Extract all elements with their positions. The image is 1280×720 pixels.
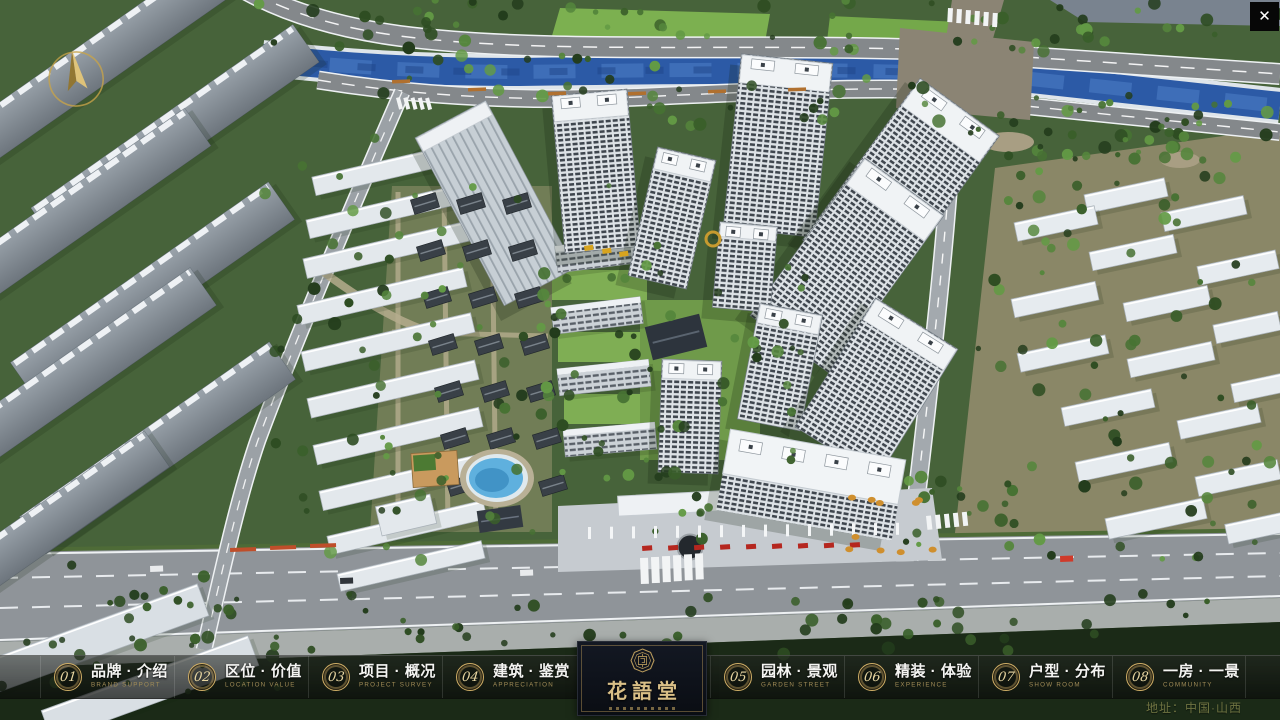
nav-badge-07: 07 xyxy=(992,663,1020,691)
nav-badge-01: 01 xyxy=(54,663,82,691)
nav-label: 园林 · 景观 xyxy=(761,664,850,679)
close-button[interactable]: ✕ xyxy=(1250,2,1279,31)
nav-item-architecture[interactable]: 04 建筑 · 鉴赏 APPRECIATION xyxy=(442,656,576,698)
logo-english-subtitle xyxy=(609,707,675,710)
project-address: 地址：中国·山西 xyxy=(1146,699,1242,716)
nav-item-floorplans[interactable]: 07 户型 · 分布 SHOW ROOM xyxy=(978,656,1112,698)
close-icon: ✕ xyxy=(1258,8,1271,25)
nav-item-interior[interactable]: 06 精装 · 体验 EXPERIENCE xyxy=(844,656,978,698)
nav-label: 区位 · 价值 xyxy=(225,664,316,679)
nav-item-garden[interactable]: 05 园林 · 景观 GARDEN STREET xyxy=(710,656,844,698)
nav-sublabel: GARDEN STREET xyxy=(761,682,830,688)
sales-app-window: ✕ 01 品牌 · 介绍 BRAND SUPPORT 02 区位 · 价值 LO… xyxy=(0,0,1280,720)
compass-north-indicator xyxy=(42,42,110,110)
nav-sublabel: SHOW ROOM xyxy=(1029,682,1089,688)
nav-badge-08: 08 xyxy=(1126,663,1154,691)
swimming-pool xyxy=(460,449,534,507)
nav-label: 一房 · 一景 xyxy=(1163,664,1240,679)
nav-sublabel: APPRECIATION xyxy=(493,682,554,688)
nav-badge-02: 02 xyxy=(188,663,216,691)
nav-sublabel: LOCATION VALUE xyxy=(225,682,296,688)
nav-label: 精装 · 体验 xyxy=(895,664,972,679)
masterplan-viewport[interactable] xyxy=(0,0,1280,720)
nav-item-location[interactable]: 02 区位 · 价值 LOCATION VALUE xyxy=(174,656,308,698)
nav-sublabel: COMMUNITY xyxy=(1163,682,1223,688)
nav-item-community[interactable]: 08 一房 · 一景 COMMUNITY xyxy=(1112,656,1246,698)
project-logo-title: 花語堂 xyxy=(602,675,682,704)
nav-label: 建筑 · 鉴赏 xyxy=(493,664,571,679)
nav-sublabel: PROJECT SURVEY xyxy=(359,682,433,688)
nav-item-brand[interactable]: 01 品牌 · 介绍 BRAND SUPPORT xyxy=(40,656,174,698)
nav-label: 户型 · 分布 xyxy=(1029,664,1106,679)
nav-badge-05: 05 xyxy=(724,663,752,691)
nav-badge-03: 03 xyxy=(322,663,350,691)
nav-label: 品牌 · 介绍 xyxy=(91,664,181,679)
nav-sublabel: EXPERIENCE xyxy=(895,682,955,688)
nav-badge-04: 04 xyxy=(456,663,484,691)
project-logo-panel[interactable]: 花語堂 xyxy=(577,641,707,716)
seal-emblem-icon xyxy=(629,647,656,674)
nav-item-project[interactable]: 03 项目 · 概况 PROJECT SURVEY xyxy=(308,656,442,698)
nav-sublabel: BRAND SUPPORT xyxy=(91,682,161,688)
nav-label: 项目 · 概况 xyxy=(359,664,454,679)
nav-badge-06: 06 xyxy=(858,663,886,691)
